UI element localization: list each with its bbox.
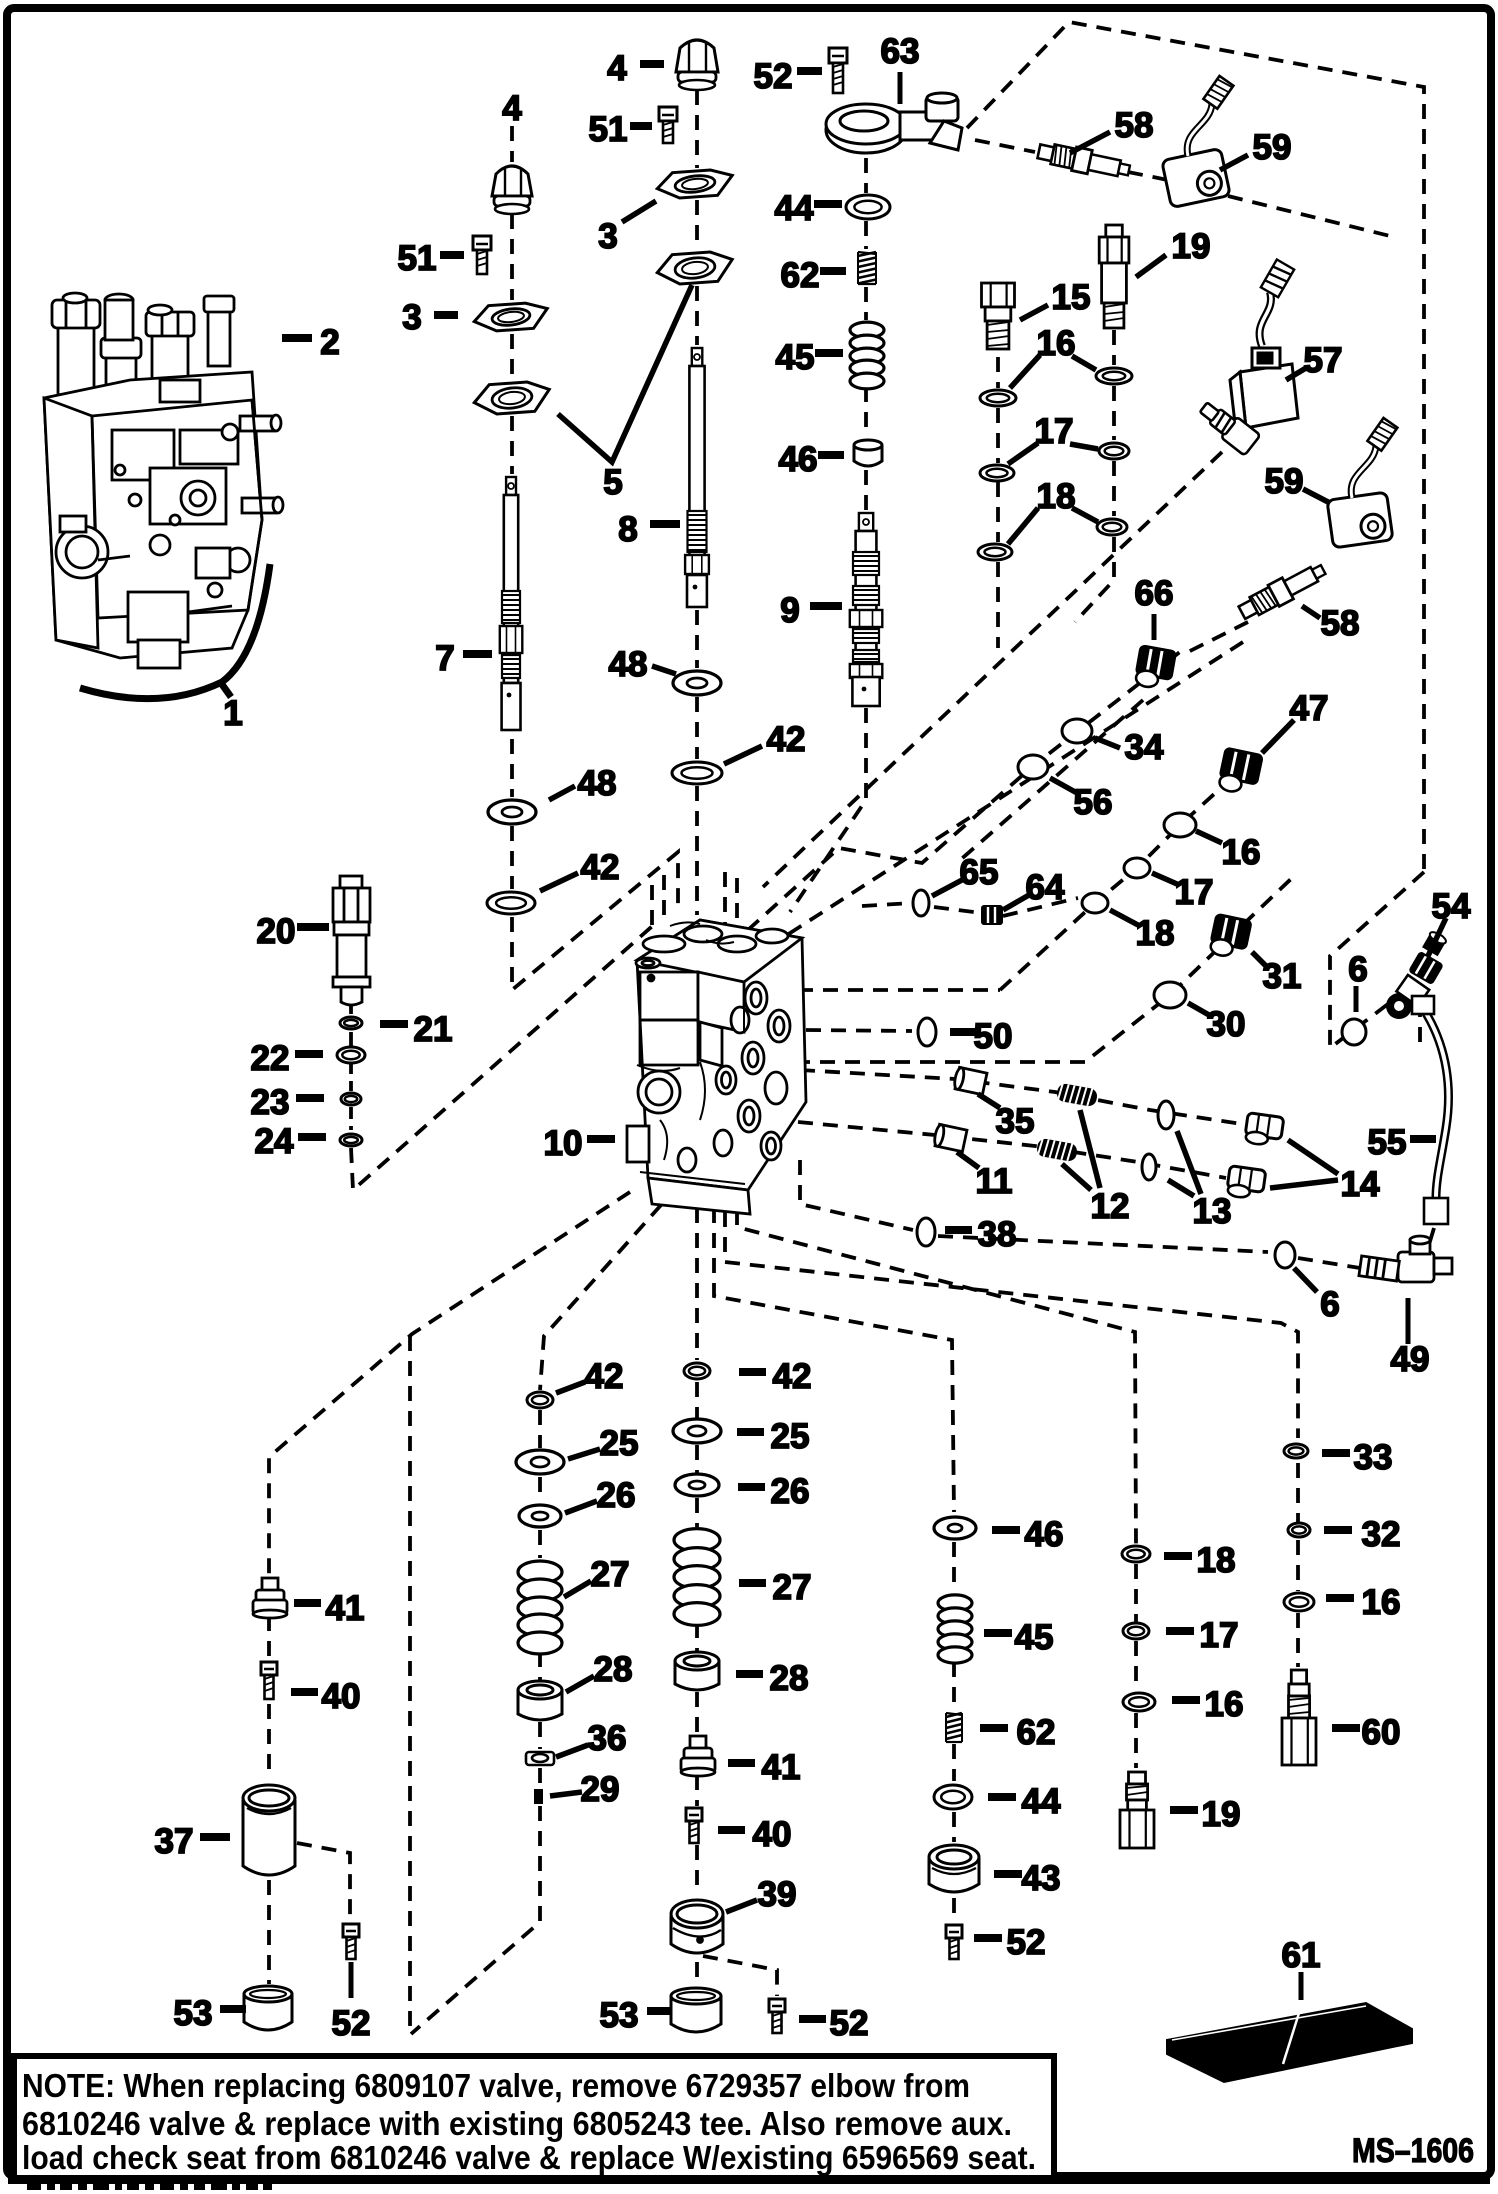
- svg-text:33: 33: [1354, 1438, 1393, 1477]
- svg-text:42: 42: [585, 1357, 624, 1396]
- svg-text:54: 54: [1432, 887, 1471, 926]
- svg-text:58: 58: [1321, 604, 1360, 643]
- svg-text:17: 17: [1200, 1616, 1239, 1655]
- svg-text:45: 45: [1015, 1618, 1054, 1657]
- svg-text:66: 66: [1135, 574, 1174, 613]
- svg-text:30: 30: [1207, 1005, 1246, 1044]
- svg-text:48: 48: [609, 645, 648, 684]
- svg-text:39: 39: [758, 1875, 797, 1914]
- svg-text:57: 57: [1304, 341, 1343, 380]
- svg-text:3: 3: [598, 217, 617, 256]
- svg-text:28: 28: [594, 1650, 633, 1689]
- svg-text:4: 4: [607, 49, 627, 88]
- svg-text:62: 62: [781, 256, 820, 295]
- svg-text:52: 52: [830, 2004, 869, 2043]
- svg-text:17: 17: [1035, 412, 1074, 451]
- svg-text:59: 59: [1265, 462, 1304, 501]
- svg-text:18: 18: [1037, 477, 1076, 516]
- svg-text:15: 15: [1052, 278, 1091, 317]
- svg-text:50: 50: [974, 1017, 1013, 1056]
- svg-text:58: 58: [1115, 106, 1154, 145]
- svg-text:43: 43: [1022, 1859, 1061, 1898]
- svg-text:25: 25: [600, 1424, 639, 1463]
- svg-text:24: 24: [255, 1122, 294, 1161]
- svg-text:37: 37: [155, 1822, 194, 1861]
- svg-text:25: 25: [771, 1417, 810, 1456]
- svg-text:44: 44: [1022, 1782, 1061, 1821]
- svg-text:46: 46: [779, 440, 818, 479]
- svg-text:55: 55: [1368, 1123, 1407, 1162]
- svg-text:20: 20: [257, 912, 296, 951]
- svg-text:16: 16: [1205, 1685, 1244, 1724]
- svg-text:42: 42: [767, 720, 806, 759]
- svg-text:42: 42: [581, 848, 620, 887]
- svg-text:46: 46: [1025, 1515, 1064, 1554]
- svg-text:5: 5: [603, 463, 622, 502]
- svg-text:1: 1: [223, 694, 242, 733]
- svg-text:2: 2: [320, 323, 339, 362]
- svg-text:14: 14: [1341, 1165, 1380, 1204]
- svg-text:62: 62: [1017, 1713, 1056, 1752]
- svg-text:17: 17: [1175, 873, 1214, 912]
- svg-text:64: 64: [1026, 868, 1065, 907]
- svg-text:23: 23: [251, 1083, 290, 1122]
- svg-text:53: 53: [174, 1994, 213, 2033]
- svg-text:16: 16: [1222, 833, 1261, 872]
- svg-text:60: 60: [1362, 1713, 1401, 1752]
- svg-text:19: 19: [1202, 1795, 1241, 1834]
- svg-text:6810246 valve & replace with e: 6810246 valve & replace with existing 68…: [22, 2105, 1012, 2142]
- svg-text:36: 36: [588, 1719, 627, 1758]
- svg-text:52: 52: [332, 2004, 371, 2043]
- svg-text:53: 53: [600, 1996, 639, 2035]
- svg-text:51: 51: [589, 110, 628, 149]
- svg-text:44: 44: [775, 189, 814, 228]
- svg-text:7: 7: [435, 639, 454, 678]
- svg-text:3: 3: [402, 298, 421, 337]
- svg-text:34: 34: [1125, 728, 1164, 767]
- svg-text:MS–1606: MS–1606: [1352, 2132, 1474, 2170]
- svg-text:10: 10: [544, 1124, 583, 1163]
- svg-text:28: 28: [770, 1659, 809, 1698]
- svg-text:29: 29: [581, 1770, 620, 1809]
- svg-text:52: 52: [754, 57, 793, 96]
- svg-text:13: 13: [1193, 1192, 1232, 1231]
- svg-text:26: 26: [771, 1472, 810, 1511]
- svg-text:16: 16: [1037, 324, 1076, 363]
- svg-text:12: 12: [1091, 1187, 1130, 1226]
- svg-text:48: 48: [578, 764, 617, 803]
- svg-text:NOTE: When replacing 6809107 v: NOTE: When replacing 6809107 valve, remo…: [22, 2067, 970, 2104]
- svg-text:19: 19: [1172, 227, 1211, 266]
- svg-text:11: 11: [976, 1162, 1013, 1201]
- svg-text:49: 49: [1391, 1340, 1430, 1379]
- svg-text:59: 59: [1253, 128, 1292, 167]
- svg-text:61: 61: [1282, 1936, 1321, 1975]
- svg-text:52: 52: [1007, 1923, 1046, 1962]
- svg-text:9: 9: [780, 591, 799, 630]
- svg-text:16: 16: [1362, 1583, 1401, 1622]
- svg-text:40: 40: [322, 1677, 361, 1716]
- svg-text:load check seat from 6810246 v: load check seat from 6810246 valve & rep…: [22, 2139, 1036, 2176]
- svg-text:6: 6: [1348, 950, 1367, 989]
- svg-text:18: 18: [1197, 1541, 1236, 1580]
- svg-text:8: 8: [618, 510, 637, 549]
- svg-text:27: 27: [773, 1568, 812, 1607]
- svg-text:21: 21: [414, 1010, 453, 1049]
- svg-text:45: 45: [776, 338, 815, 377]
- svg-text:51: 51: [398, 239, 437, 278]
- svg-text:27: 27: [591, 1555, 630, 1594]
- svg-text:4: 4: [502, 89, 522, 128]
- svg-text:41: 41: [326, 1589, 365, 1628]
- svg-text:31: 31: [1263, 957, 1302, 996]
- svg-text:63: 63: [881, 32, 920, 71]
- svg-text:32: 32: [1362, 1515, 1401, 1554]
- svg-text:41: 41: [762, 1748, 801, 1787]
- svg-text:38: 38: [978, 1215, 1017, 1254]
- svg-text:65: 65: [960, 853, 999, 892]
- svg-text:56: 56: [1074, 783, 1113, 822]
- svg-text:6: 6: [1320, 1285, 1339, 1324]
- svg-text:22: 22: [251, 1039, 290, 1078]
- svg-text:42: 42: [773, 1357, 812, 1396]
- svg-text:26: 26: [597, 1476, 636, 1515]
- svg-text:18: 18: [1136, 914, 1175, 953]
- svg-text:35: 35: [996, 1102, 1035, 1141]
- svg-text:40: 40: [753, 1815, 792, 1854]
